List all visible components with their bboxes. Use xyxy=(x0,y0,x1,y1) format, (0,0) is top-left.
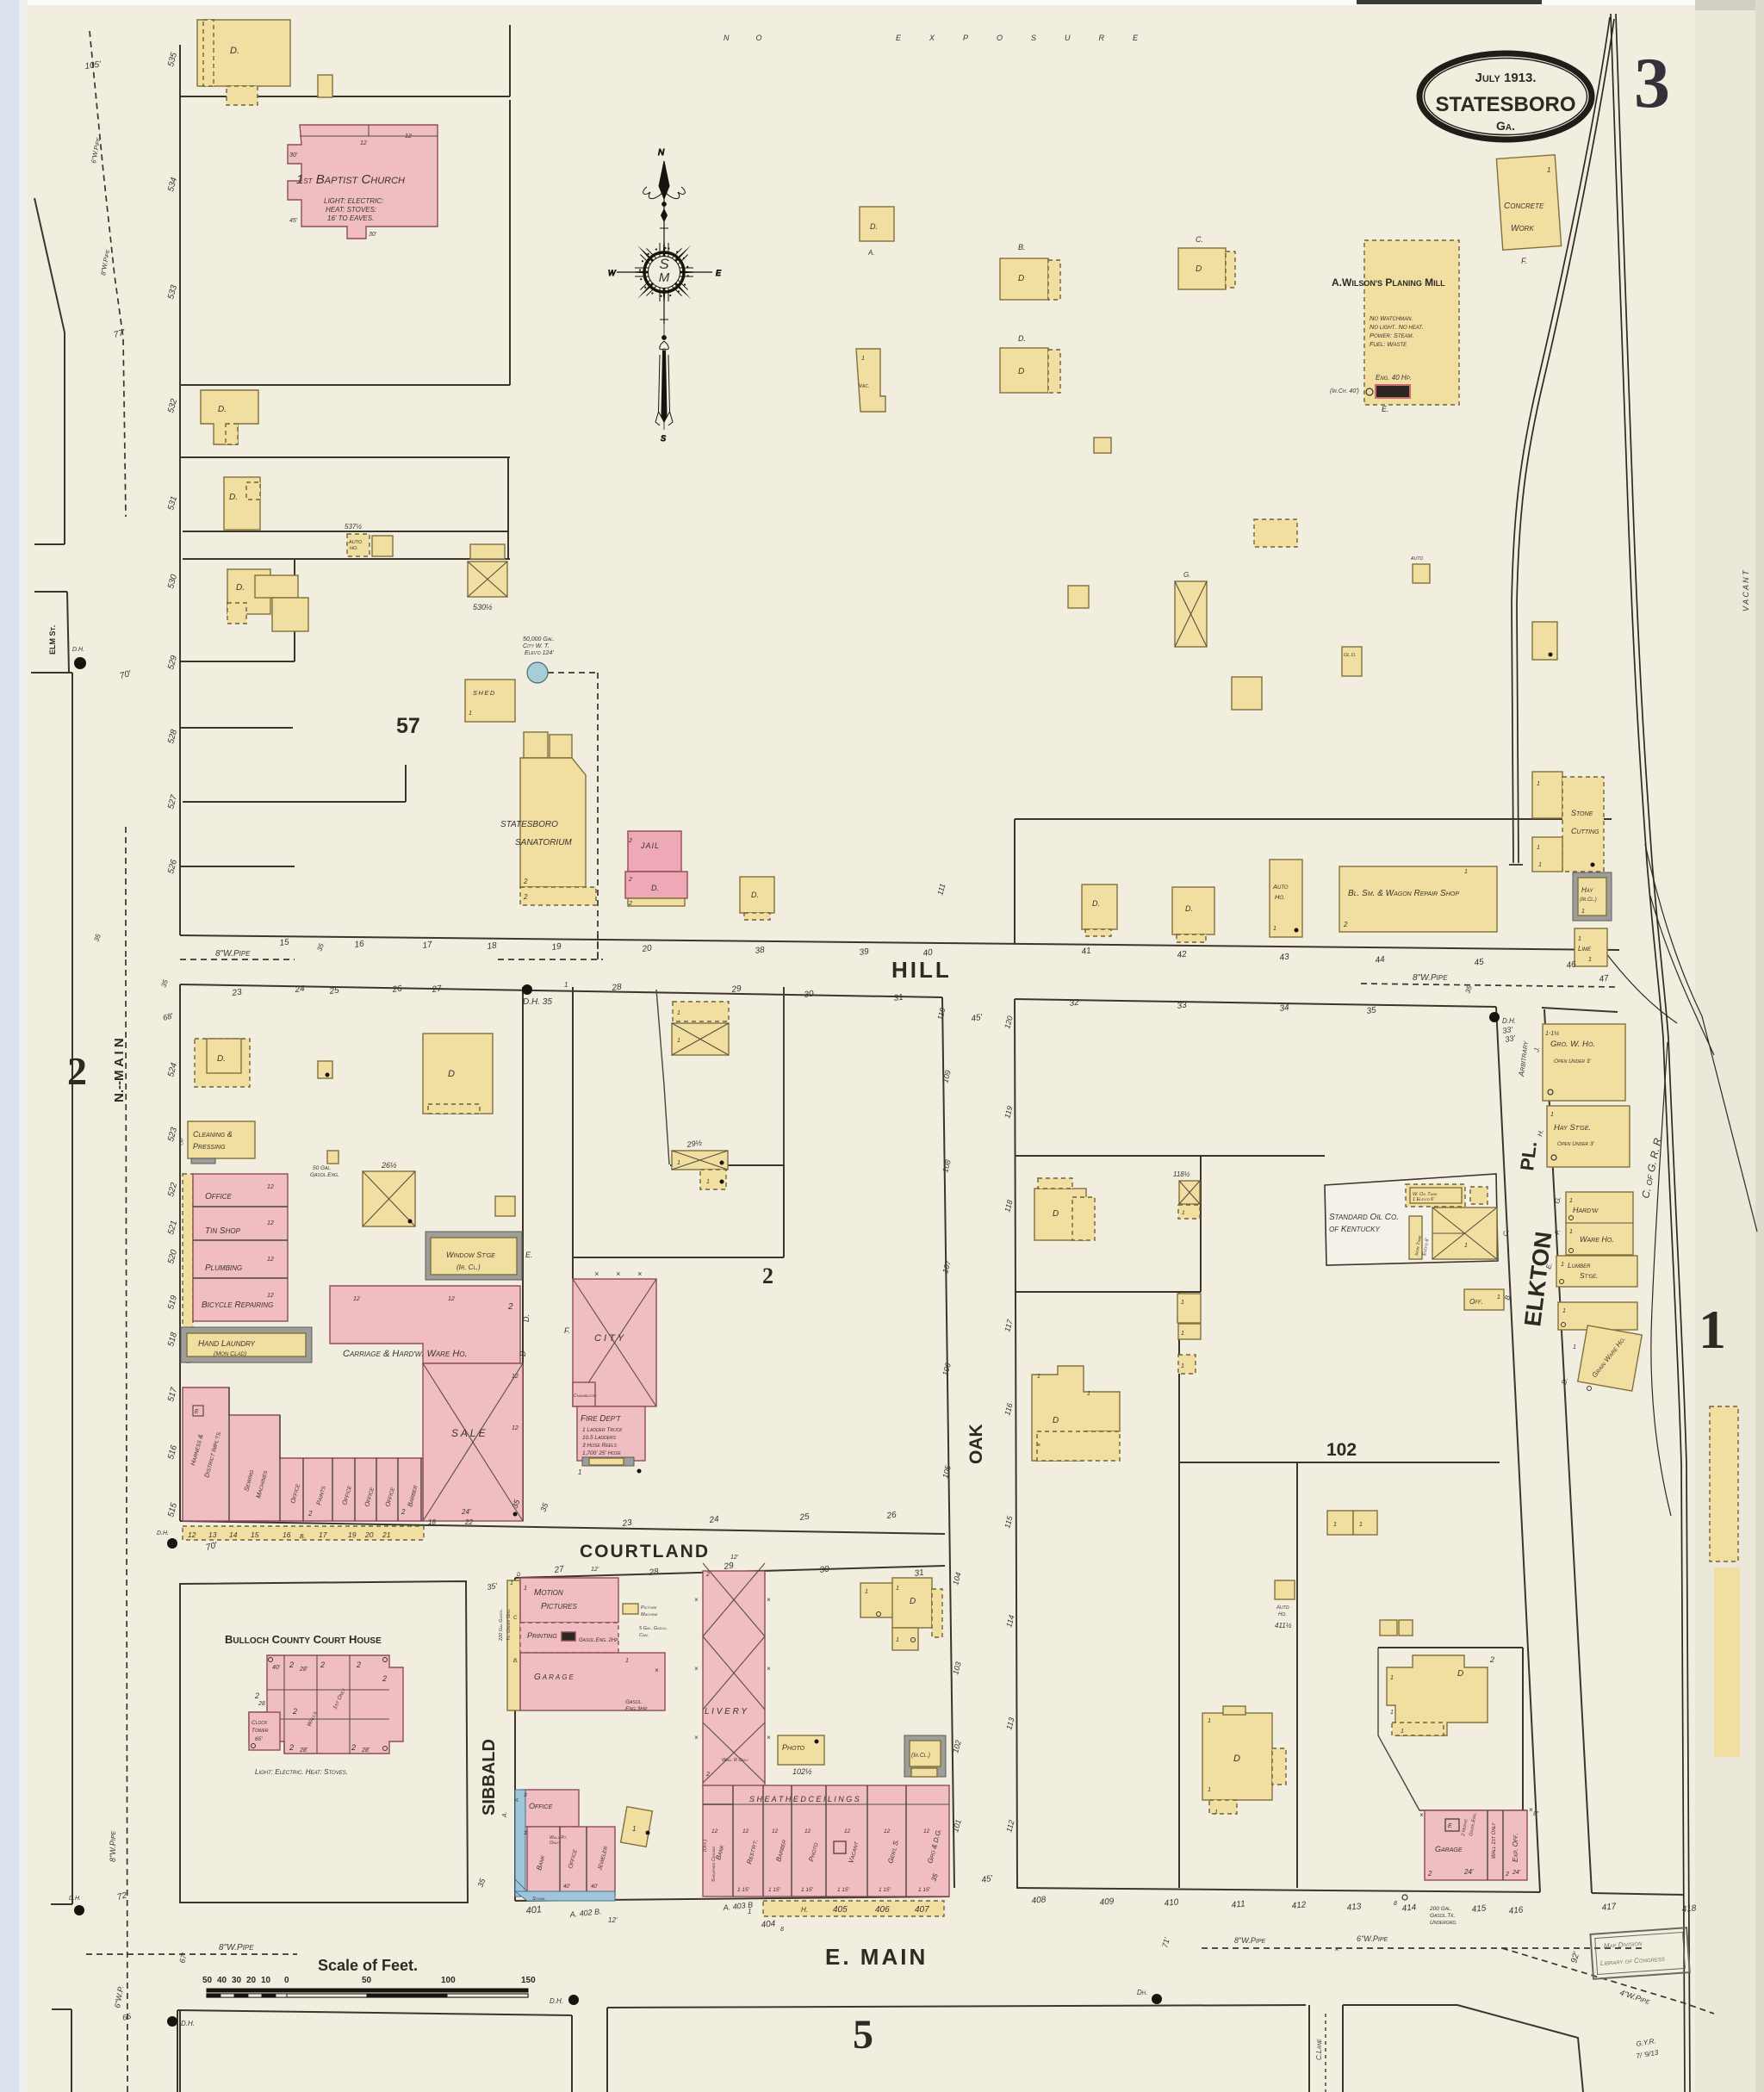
svg-text:45: 45 xyxy=(1474,957,1485,968)
svg-text:1: 1 xyxy=(1464,869,1468,875)
svg-text:OF KENTUCKY: OF KENTUCKY xyxy=(1329,1225,1380,1234)
svg-text:Scale of Feet.: Scale of Feet. xyxy=(318,1957,418,1974)
svg-text:×: × xyxy=(694,1734,699,1741)
svg-text:20: 20 xyxy=(641,943,653,954)
svg-text:GASOL.TK.: GASOL.TK. xyxy=(1430,1913,1456,1919)
svg-text:30: 30 xyxy=(804,989,815,1000)
svg-text:D.: D. xyxy=(522,1314,531,1322)
svg-text:PLUMBING: PLUMBING xyxy=(205,1263,242,1273)
svg-text:×: × xyxy=(694,1596,699,1604)
svg-text:2: 2 xyxy=(401,1508,406,1516)
svg-text:AUTO: AUTO xyxy=(348,540,363,545)
svg-text:100: 100 xyxy=(441,1976,456,1985)
svg-text:12: 12 xyxy=(742,1828,749,1834)
svg-text:417: 417 xyxy=(1601,1902,1617,1913)
svg-text:(IR.CL.): (IR.CL.) xyxy=(911,1753,930,1759)
svg-text:43: 43 xyxy=(1279,952,1290,963)
svg-text:12: 12 xyxy=(267,1293,274,1299)
svg-text:(MON CLAD): (MON CLAD) xyxy=(214,1351,246,1357)
svg-text:UNDERGRD.: UNDERGRD. xyxy=(1430,1920,1457,1926)
svg-text:1: 1 xyxy=(1182,1210,1185,1216)
svg-text:1: 1 xyxy=(578,1468,581,1476)
svg-text:V A C A N T: V A C A N T xyxy=(1742,569,1750,611)
svg-text:1: 1 xyxy=(1562,1308,1566,1314)
svg-text:(IR.CL.): (IR.CL.) xyxy=(1580,897,1597,903)
svg-text:26½: 26½ xyxy=(381,1161,397,1170)
svg-text:D: D xyxy=(1233,1754,1240,1764)
svg-text:3: 3 xyxy=(524,1792,527,1798)
svg-text:16: 16 xyxy=(283,1530,291,1539)
svg-text:×: × xyxy=(594,1269,599,1278)
svg-text:D.: D. xyxy=(651,884,659,892)
svg-text:1: 1 xyxy=(1578,936,1581,942)
svg-text:2: 2 xyxy=(507,1302,513,1312)
svg-text:1: 1 xyxy=(1390,1675,1394,1681)
svg-text:2: 2 xyxy=(67,1049,87,1093)
svg-text:29: 29 xyxy=(723,1561,735,1572)
svg-text:1: 1 xyxy=(1588,957,1592,963)
svg-text:13: 13 xyxy=(208,1530,217,1539)
svg-text:416: 416 xyxy=(1508,1905,1524,1916)
svg-text:8: 8 xyxy=(1394,1901,1397,1907)
svg-text:537½: 537½ xyxy=(345,523,362,531)
svg-text:65': 65' xyxy=(255,1736,263,1742)
svg-text:418: 418 xyxy=(1681,1903,1697,1915)
svg-text:×: × xyxy=(694,1665,699,1673)
svg-text:25: 25 xyxy=(328,985,340,996)
svg-text:1: 1 xyxy=(1699,1299,1726,1360)
svg-text:D.H. 35: D.H. 35 xyxy=(523,997,552,1007)
svg-text:D.: D. xyxy=(1185,904,1193,913)
svg-text:23: 23 xyxy=(231,987,243,998)
svg-text:H.: H. xyxy=(801,1906,808,1914)
svg-text:24': 24' xyxy=(1463,1868,1474,1876)
svg-text:3: 3 xyxy=(524,1830,527,1836)
svg-text:2: 2 xyxy=(351,1743,356,1752)
svg-text:SANATORIUM: SANATORIUM xyxy=(515,838,572,847)
svg-text:D.: D. xyxy=(218,405,227,414)
svg-text:D.H.: D.H. xyxy=(181,2020,195,2027)
svg-text:E: E xyxy=(1448,1823,1452,1829)
svg-text:A: A xyxy=(515,1798,520,1803)
svg-text:12: 12 xyxy=(188,1530,196,1539)
svg-text:28': 28' xyxy=(299,1667,308,1673)
svg-text:407: 407 xyxy=(915,1905,929,1915)
svg-text:OFFICE: OFFICE xyxy=(205,1192,233,1201)
svg-text:20: 20 xyxy=(364,1530,374,1539)
svg-text:40': 40' xyxy=(563,1884,571,1890)
svg-text:30': 30' xyxy=(369,232,377,238)
svg-text:16: 16 xyxy=(354,939,365,950)
svg-text:1 15': 1 15' xyxy=(918,1887,931,1893)
svg-text:33': 33' xyxy=(1505,1034,1517,1044)
svg-text:409: 409 xyxy=(1099,1896,1115,1908)
svg-text:12: 12 xyxy=(448,1296,455,1302)
svg-text:38: 38 xyxy=(755,945,766,956)
svg-text:×: × xyxy=(1037,1443,1040,1449)
svg-text:28': 28' xyxy=(361,1747,370,1754)
svg-text:TOWER: TOWER xyxy=(252,1728,269,1734)
svg-text:2: 2 xyxy=(307,1510,313,1518)
svg-text:16' TO EAVES.: 16' TO EAVES. xyxy=(327,214,374,222)
svg-text:A.: A. xyxy=(867,249,875,257)
svg-text:1: 1 xyxy=(706,1179,710,1185)
svg-text:200 GAL.: 200 GAL. xyxy=(1429,1906,1452,1912)
svg-text:×: × xyxy=(616,1269,620,1278)
svg-text:M: M xyxy=(659,270,670,285)
svg-text:S H E A T H E D C E I L I N: S H E A T H E D C E I L I N G S xyxy=(749,1795,860,1803)
svg-text:GARAGE: GARAGE xyxy=(534,1673,575,1682)
svg-text:8": 8" xyxy=(1533,1811,1539,1817)
svg-text:×: × xyxy=(1419,1811,1424,1819)
svg-text:D.H.: D.H. xyxy=(72,647,84,653)
svg-text:ELEV'D 124': ELEV'D 124' xyxy=(525,650,554,656)
svg-text:E.: E. xyxy=(1382,405,1389,413)
svg-text:×: × xyxy=(1334,1945,1339,1953)
svg-text:50: 50 xyxy=(202,1976,213,1985)
svg-text:D.H.: D.H. xyxy=(550,1997,563,2005)
svg-text:102: 102 xyxy=(1326,1440,1357,1460)
svg-text:1: 1 xyxy=(677,1160,680,1166)
svg-text:OPEN UNDER 3': OPEN UNDER 3' xyxy=(1554,1058,1591,1065)
svg-text:21: 21 xyxy=(382,1530,391,1539)
svg-text:D.: D. xyxy=(236,583,245,593)
svg-text:CONCRETE: CONCRETE xyxy=(1504,202,1544,211)
svg-text:E. MAIN: E. MAIN xyxy=(825,1944,928,1970)
svg-text:1: 1 xyxy=(1538,862,1542,868)
svg-text:8"W.PIPE: 8"W.PIPE xyxy=(1413,973,1448,983)
svg-text:1: 1 xyxy=(1581,909,1585,915)
svg-text:2: 2 xyxy=(523,893,528,901)
svg-text:TIN SHOP: TIN SHOP xyxy=(205,1226,241,1236)
svg-text:40: 40 xyxy=(217,1976,227,1985)
svg-text:SIBBALD: SIBBALD xyxy=(480,1739,499,1816)
svg-text:1: 1 xyxy=(564,981,568,989)
svg-text:1-1½: 1-1½ xyxy=(1545,1030,1559,1037)
svg-text:D.H.: D.H. xyxy=(157,1530,169,1536)
svg-text:1: 1 xyxy=(1214,1810,1218,1816)
svg-text:12': 12' xyxy=(730,1555,739,1561)
svg-text:12: 12 xyxy=(267,1257,274,1263)
svg-text:2: 2 xyxy=(762,1263,773,1288)
svg-text:D.: D. xyxy=(230,46,239,56)
svg-text:1: 1 xyxy=(1181,1331,1184,1337)
svg-text:50: 50 xyxy=(362,1976,372,1985)
svg-text:A.: A. xyxy=(502,1811,508,1818)
svg-text:118½: 118½ xyxy=(1173,1170,1190,1178)
svg-text:D: D xyxy=(517,1573,521,1578)
svg-text:1 15': 1 15' xyxy=(768,1887,781,1893)
svg-text:EXPOSURE: EXPOSURE xyxy=(896,34,1166,42)
svg-text:C I T Y: C I T Y xyxy=(594,1333,624,1344)
svg-text:S A L E: S A L E xyxy=(451,1427,487,1439)
svg-text:1: 1 xyxy=(1573,1344,1576,1350)
svg-text:12: 12 xyxy=(772,1828,779,1834)
svg-text:D.: D. xyxy=(1092,899,1100,908)
svg-text:D: D xyxy=(1053,1209,1059,1219)
svg-text:31: 31 xyxy=(914,1568,925,1579)
svg-text:SHED: SHED xyxy=(473,689,496,697)
svg-text:NO: NO xyxy=(724,34,789,42)
svg-text:1: 1 xyxy=(865,1589,868,1595)
svg-text:B.: B. xyxy=(300,1534,306,1540)
svg-text:D.: D. xyxy=(229,493,238,502)
svg-text:AUTO: AUTO xyxy=(1410,556,1423,562)
svg-text:S: S xyxy=(661,434,666,443)
svg-text:HO.: HO. xyxy=(1278,1612,1287,1617)
svg-text:28: 28 xyxy=(648,1567,660,1578)
svg-text:24': 24' xyxy=(461,1508,471,1516)
svg-text:N.--M A I N: N.--M A I N xyxy=(112,1038,127,1102)
svg-text:28: 28 xyxy=(611,982,623,993)
svg-text:1,700' 25' HOSE: 1,700' 25' HOSE xyxy=(582,1450,622,1456)
svg-text:19: 19 xyxy=(348,1530,357,1539)
svg-text:530½: 530½ xyxy=(473,603,493,611)
svg-text:D: D xyxy=(1457,1669,1463,1679)
svg-text:20: 20 xyxy=(246,1976,257,1985)
svg-text:1: 1 xyxy=(625,1658,629,1664)
svg-text:412: 412 xyxy=(1291,1900,1307,1911)
svg-text:33: 33 xyxy=(1177,1000,1188,1011)
svg-text:C: C xyxy=(513,1616,518,1621)
svg-text:CITY W. T.: CITY W. T. xyxy=(523,643,550,649)
svg-text:PICTURES: PICTURES xyxy=(541,1602,577,1611)
svg-text:×: × xyxy=(767,1596,771,1604)
svg-text:30: 30 xyxy=(819,1564,830,1575)
svg-text:408: 408 xyxy=(1031,1895,1047,1906)
svg-text:12: 12 xyxy=(512,1425,519,1431)
svg-text:1: 1 xyxy=(524,1586,527,1592)
svg-text:HAND LAUNDRY: HAND LAUNDRY xyxy=(198,1339,256,1349)
svg-text:102½: 102½ xyxy=(792,1767,812,1776)
svg-text:12: 12 xyxy=(267,1220,274,1226)
svg-text:2: 2 xyxy=(289,1661,294,1669)
svg-text:1: 1 xyxy=(1359,1522,1363,1528)
svg-text:29: 29 xyxy=(730,984,742,995)
svg-text:8: 8 xyxy=(780,1927,784,1933)
svg-text:STANDARD OIL CO.: STANDARD OIL CO. xyxy=(1329,1213,1399,1222)
svg-text:D: D xyxy=(1018,274,1024,283)
svg-text:AUTO: AUTO xyxy=(1276,1605,1289,1611)
svg-text:CLOCK: CLOCK xyxy=(252,1720,268,1726)
svg-text:24': 24' xyxy=(1512,1870,1521,1876)
svg-text:GASOL.: GASOL. xyxy=(625,1699,643,1705)
svg-text:1 15': 1 15' xyxy=(837,1887,850,1893)
svg-text:2: 2 xyxy=(705,1772,710,1778)
svg-text:406: 406 xyxy=(875,1905,890,1915)
svg-text:1: 1 xyxy=(1273,926,1276,932)
svg-text:50,000 GAL.: 50,000 GAL. xyxy=(523,636,555,642)
svg-text:25: 25 xyxy=(798,1512,811,1523)
svg-text:45': 45' xyxy=(289,218,298,224)
svg-text:32: 32 xyxy=(1069,997,1080,1009)
svg-text:1: 1 xyxy=(1181,1363,1184,1369)
svg-text:2: 2 xyxy=(628,877,632,883)
svg-text:413: 413 xyxy=(1346,1902,1362,1913)
svg-text:C.: C. xyxy=(1196,235,1203,244)
svg-text:1: 1 xyxy=(1537,845,1540,851)
svg-text:1: 1 xyxy=(632,1825,636,1833)
svg-text:19: 19 xyxy=(551,941,562,953)
svg-text:12: 12 xyxy=(804,1828,811,1834)
svg-text:411½: 411½ xyxy=(1275,1622,1292,1630)
svg-text:8"W.PIPE: 8"W.PIPE xyxy=(215,949,251,959)
svg-text:JAIL: JAIL xyxy=(640,841,660,850)
svg-text:L I V E R Y: L I V E R Y xyxy=(705,1707,748,1716)
svg-text:1: 1 xyxy=(510,1580,513,1586)
svg-text:12: 12 xyxy=(512,1374,519,1380)
svg-text:HO.: HO. xyxy=(350,546,358,551)
svg-text:STATESBORO: STATESBORO xyxy=(500,820,558,829)
svg-text:1: 1 xyxy=(1561,1262,1564,1268)
svg-text:1: 1 xyxy=(677,1038,680,1044)
svg-text:22: 22 xyxy=(464,1518,473,1526)
svg-text:1: 1 xyxy=(1537,781,1540,787)
svg-text:1: 1 xyxy=(1569,1198,1573,1204)
svg-text:405: 405 xyxy=(833,1905,848,1915)
svg-text:D: D xyxy=(519,1350,527,1356)
svg-text:WALL 1ST ONLY: WALL 1ST ONLY xyxy=(1492,1822,1497,1859)
svg-text:12: 12 xyxy=(923,1828,930,1834)
svg-text:150: 150 xyxy=(521,1976,536,1985)
svg-text:1: 1 xyxy=(1333,1522,1337,1528)
svg-text:×: × xyxy=(655,1667,659,1674)
svg-text:28: 28 xyxy=(258,1701,265,1707)
svg-text:2: 2 xyxy=(1505,1872,1509,1878)
svg-text:1: 1 xyxy=(861,356,865,362)
svg-text:2: 2 xyxy=(628,901,632,907)
svg-text:1: 1 xyxy=(1390,1710,1394,1716)
svg-text:2: 2 xyxy=(523,878,528,885)
svg-text:24: 24 xyxy=(294,984,306,995)
svg-text:34: 34 xyxy=(1279,1003,1290,1014)
svg-text:26: 26 xyxy=(885,1510,898,1521)
svg-text:40': 40' xyxy=(591,1884,599,1890)
svg-text:46: 46 xyxy=(1566,959,1577,971)
svg-text:17: 17 xyxy=(319,1530,327,1539)
svg-text:1: 1 xyxy=(1087,1391,1090,1397)
svg-text:2: 2 xyxy=(356,1661,361,1669)
svg-text:410: 410 xyxy=(1164,1897,1179,1909)
svg-text:0: 0 xyxy=(284,1976,289,1985)
svg-text:12': 12' xyxy=(608,1916,618,1924)
svg-text:×: × xyxy=(637,1269,642,1278)
svg-text:17: 17 xyxy=(422,940,433,951)
svg-text:D.: D. xyxy=(1018,334,1026,343)
svg-text:2: 2 xyxy=(628,838,632,844)
svg-text:1: 1 xyxy=(1569,1229,1573,1235)
svg-text:3 HOSE REELS: 3 HOSE REELS xyxy=(582,1443,618,1449)
svg-text:OL.O.: OL.O. xyxy=(1344,653,1356,658)
svg-text:411: 411 xyxy=(1231,1899,1245,1910)
svg-text:39: 39 xyxy=(859,947,870,958)
svg-text:42: 42 xyxy=(1177,949,1188,960)
svg-text:1 15': 1 15' xyxy=(737,1887,750,1893)
svg-text:30': 30' xyxy=(289,152,298,158)
svg-text:12: 12 xyxy=(844,1828,851,1834)
svg-text:3: 3 xyxy=(1634,43,1670,123)
svg-text:WORK: WORK xyxy=(1511,224,1534,233)
svg-text:401: 401 xyxy=(525,1904,543,1916)
svg-text:12': 12' xyxy=(591,1567,599,1573)
svg-text:PL.: PL. xyxy=(1516,1140,1541,1172)
svg-text:GASOL.ENG.: GASOL.ENG. xyxy=(310,1172,339,1178)
svg-text:1: 1 xyxy=(896,1637,899,1643)
svg-text:18: 18 xyxy=(428,1518,436,1526)
svg-text:D: D xyxy=(448,1069,455,1079)
svg-text:F.: F. xyxy=(1521,257,1527,265)
svg-text:1: 1 xyxy=(1037,1374,1040,1380)
svg-text:F.: F. xyxy=(564,1326,570,1335)
svg-text:35': 35' xyxy=(487,1581,499,1592)
svg-text:12: 12 xyxy=(360,140,367,146)
svg-text:1: 1 xyxy=(1401,1729,1404,1735)
svg-text:15: 15 xyxy=(279,937,290,948)
svg-text:5: 5 xyxy=(853,2012,873,2058)
svg-text:×: × xyxy=(767,1665,771,1673)
svg-text:2: 2 xyxy=(1343,921,1348,928)
svg-text:2: 2 xyxy=(1427,1870,1432,1878)
svg-text:D.: D. xyxy=(870,222,878,231)
svg-text:44: 44 xyxy=(1375,954,1386,965)
svg-text:D: D xyxy=(1053,1416,1059,1425)
svg-text:2: 2 xyxy=(254,1692,259,1700)
svg-text:1: 1 xyxy=(1208,1787,1211,1793)
svg-text:GASOL.ENG. 2HP: GASOL.ENG. 2HP xyxy=(579,1638,618,1643)
svg-text:23: 23 xyxy=(621,1518,633,1529)
svg-text:14: 14 xyxy=(229,1530,238,1539)
svg-text:(IR.CH. 40'): (IR.CH. 40') xyxy=(1330,388,1359,394)
svg-text:1 15': 1 15' xyxy=(801,1887,814,1893)
svg-text:ENG.3HP.: ENG.3HP. xyxy=(625,1706,649,1712)
svg-text:12: 12 xyxy=(353,1296,360,1302)
svg-text:27: 27 xyxy=(553,1564,565,1575)
svg-text:STATESBORO: STATESBORO xyxy=(1435,93,1575,116)
svg-text:VAC.: VAC. xyxy=(859,384,870,389)
svg-text:D: D xyxy=(1018,367,1024,376)
svg-text:415: 415 xyxy=(1471,1903,1487,1915)
svg-text:26: 26 xyxy=(391,984,403,995)
svg-text:27: 27 xyxy=(431,984,443,995)
svg-text:2: 2 xyxy=(382,1674,387,1683)
svg-text:D: D xyxy=(1196,264,1202,274)
svg-text:HEAT: STOVES:: HEAT: STOVES: xyxy=(326,206,376,214)
svg-text:404: 404 xyxy=(761,1919,776,1930)
svg-text:1: 1 xyxy=(1208,1718,1211,1724)
svg-text:2: 2 xyxy=(705,1572,710,1578)
svg-text:1: 1 xyxy=(748,1908,751,1915)
svg-text:COURTLAND: COURTLAND xyxy=(580,1542,710,1561)
svg-text:D.: D. xyxy=(217,1054,226,1064)
svg-text:E: E xyxy=(716,269,722,277)
svg-text:15: 15 xyxy=(251,1530,259,1539)
svg-text:D.: D. xyxy=(751,891,759,899)
svg-text:D.H.: D.H. xyxy=(69,1896,81,1902)
svg-text:B.: B. xyxy=(1018,243,1026,251)
svg-text:30: 30 xyxy=(232,1976,242,1985)
svg-text:10.5 LADDERS: 10.5 LADDERS xyxy=(582,1435,617,1441)
svg-text:FIRE DEP'T: FIRE DEP'T xyxy=(581,1414,622,1424)
svg-text:40': 40' xyxy=(272,1665,281,1671)
svg-text:18: 18 xyxy=(487,940,498,952)
svg-text:1 LADDER TRUCK: 1 LADDER TRUCK xyxy=(582,1427,623,1433)
svg-text:57: 57 xyxy=(396,714,420,738)
svg-text:41: 41 xyxy=(1081,947,1092,957)
svg-text:35: 35 xyxy=(1366,1005,1377,1016)
svg-text:1: 1 xyxy=(1497,1294,1500,1301)
svg-text:BICYCLE REPAIRING: BICYCLE REPAIRING xyxy=(202,1301,273,1310)
svg-text:1: 1 xyxy=(677,1010,680,1016)
